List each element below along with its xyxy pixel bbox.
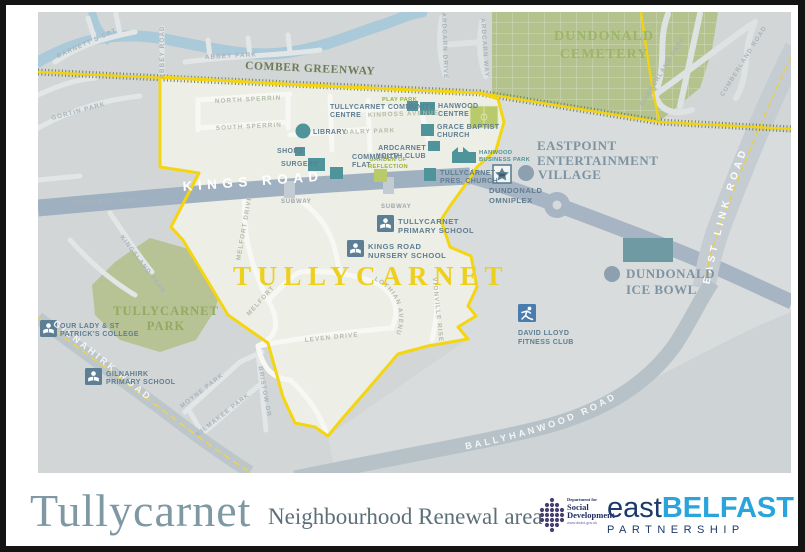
pres-church-label-2: PRES. CHURCH — [440, 178, 498, 185]
grace-baptist-label-1: GRACE BAPTIST — [437, 124, 500, 131]
cemetery-label-2: CEMETERY — [560, 47, 648, 62]
youth-club-label-1: ARDCARNET — [378, 145, 426, 152]
ebp-partnership: PARTNERSHIP — [607, 524, 787, 536]
garden-of-reflection-area — [374, 169, 387, 182]
hanwood-business-label-2: BUSINESS PARK — [479, 157, 531, 163]
nursery-school-label-2: NURSERY SCHOOL — [368, 251, 446, 260]
eastpoint-dot — [518, 165, 534, 181]
community-flat-building — [330, 167, 343, 179]
library-label: LIBRARY — [313, 129, 347, 136]
cemetery-label-1: DUNDONALD — [554, 29, 654, 44]
tullycarnet-map: KINGS ROAD EAST LINK ROAD BALLYHANWOOD R… — [38, 12, 791, 473]
ice-bowl-label-2: ICE BOWL — [626, 282, 697, 297]
gilnahirk-school-label-1: GILNAHIRK — [106, 371, 149, 378]
ice-bowl-building — [623, 238, 673, 262]
page: KINGS ROAD EAST LINK ROAD BALLYHANWOOD R… — [6, 5, 798, 546]
david-lloyd-label-2: FITNESS CLUB — [518, 339, 574, 346]
tullycarnet-area-label: TULLYCARNET — [233, 261, 509, 291]
page-title: Tullycarnet — [30, 484, 251, 537]
our-lady-label-2: PATRICK'S COLLEGE — [60, 331, 139, 338]
school-icon — [347, 240, 364, 257]
community-centre-label-2: CENTRE — [330, 112, 361, 119]
nursery-school-label-1: KINGS ROAD — [368, 242, 422, 251]
garden-label-1: GARDEN OF — [369, 157, 407, 163]
grace-baptist-label-2: CHURCH — [437, 132, 470, 139]
park-label-2: PARK — [147, 319, 186, 333]
youth-club-building — [428, 141, 440, 151]
grace-baptist-building — [421, 124, 434, 136]
street-label: ABBEY ROAD — [159, 25, 166, 78]
hanwood-centre-label-1: HANWOOD — [438, 103, 479, 110]
eastpoint-label-2: ENTERTAINMENT — [537, 153, 658, 168]
hanwood-business-label-1: HANWOOD — [479, 150, 512, 156]
garden-label-2: REFLECTION — [368, 164, 408, 170]
shops-label: SHOPS — [277, 148, 304, 155]
school-icon — [377, 215, 394, 232]
omniplex-label-1: DUNDONALD — [489, 186, 542, 195]
fitness-runner-icon — [518, 304, 536, 322]
surgery-label: SURGERY — [281, 161, 318, 168]
primary-school-label-1: TULLYCARNET — [398, 217, 459, 226]
park-label-1: TULLYCARNET — [113, 304, 219, 318]
subway-label-west: SUBWAY — [281, 199, 312, 205]
primary-school-label-2: PRIMARY SCHOOL — [398, 226, 474, 235]
ebp-east: east — [607, 492, 662, 524]
ice-bowl-label-1: DUNDONALD — [626, 266, 715, 281]
pres-church-building — [424, 168, 436, 181]
gilnahirk-school-label-2: PRIMARY SCHOOL — [106, 379, 176, 386]
eastpoint-label-1: EASTPOINT — [537, 138, 617, 153]
eastpoint-label-3: VILLAGE — [538, 167, 601, 182]
hanwood-centre-label-2: CENTRE — [438, 111, 469, 118]
roundabout-center — [553, 201, 562, 210]
ice-bowl-dot — [604, 266, 620, 282]
pres-church-label-1: TULLYCARNET — [440, 170, 496, 177]
east-belfast-partnership-logo: eastBELFAST PARTNERSHIP — [607, 494, 787, 544]
subway-label-east: SUBWAY — [381, 204, 412, 210]
david-lloyd-label-1: DAVID LLOYD — [518, 330, 569, 337]
library-dot — [296, 124, 311, 139]
dsd-dots-icon — [537, 496, 567, 536]
ebp-belfast: BELFAST — [662, 492, 794, 524]
omniplex-label-2: OMNIPLEX — [489, 196, 533, 205]
our-lady-label-1: OUR LADY & ST — [60, 323, 120, 330]
play-park-label: PLAY PARK — [382, 97, 418, 103]
school-icon — [85, 368, 102, 385]
page-subtitle: Neighbourhood Renewal area — [268, 504, 543, 530]
